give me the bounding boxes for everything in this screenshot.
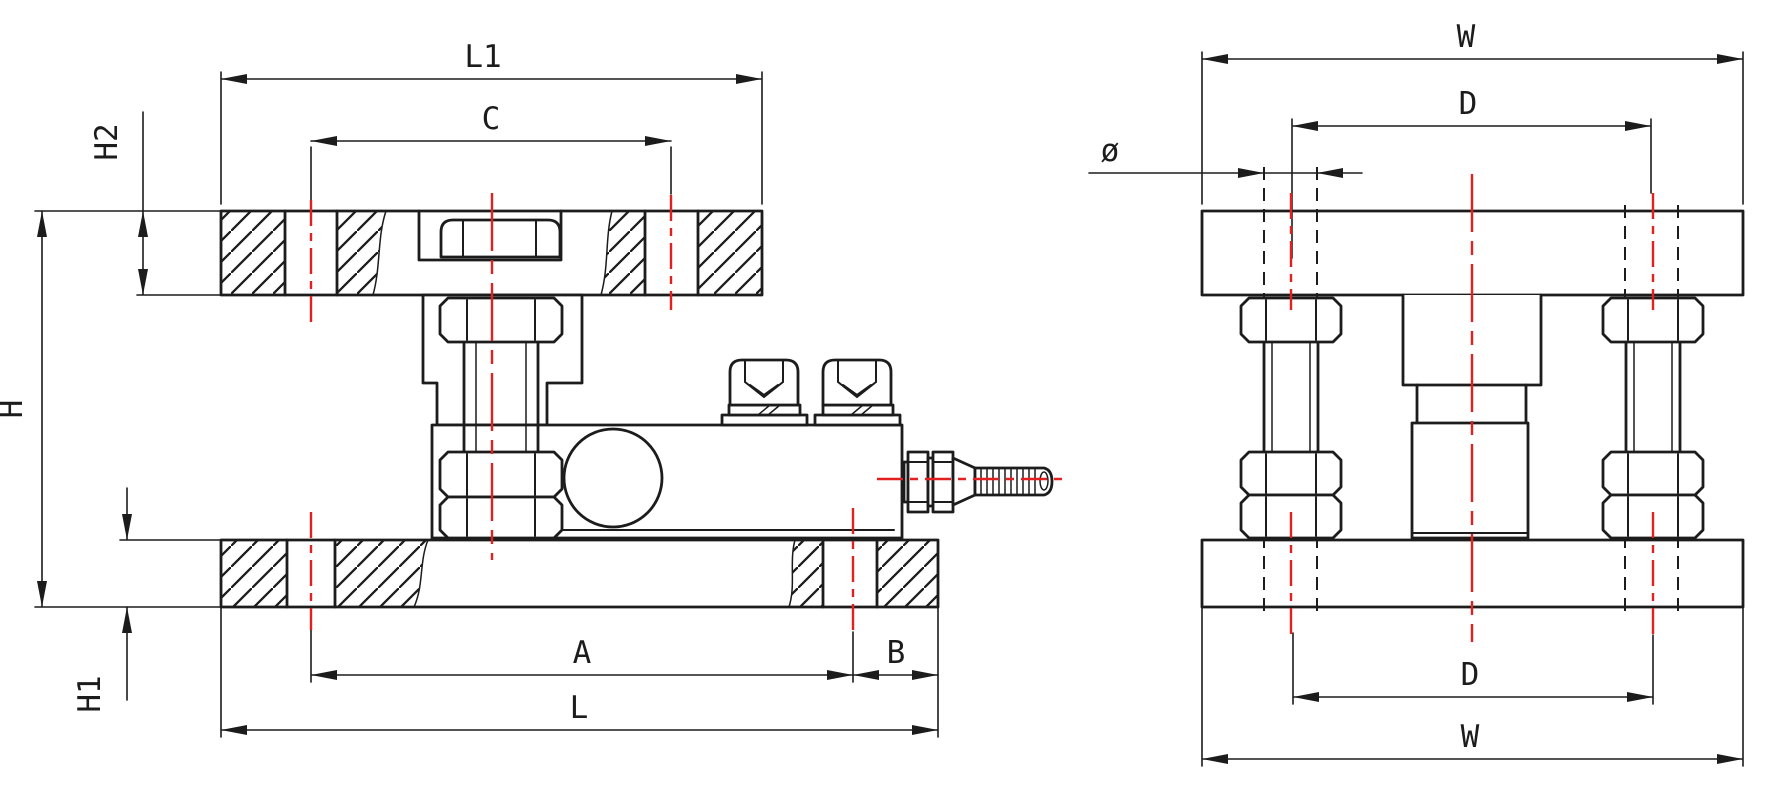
side-bottom-plate (221, 540, 938, 607)
dim-label-w-bottom: W (1461, 719, 1480, 755)
dim-label-d-top: D (1459, 86, 1478, 122)
dim-H2: H2 (35, 112, 221, 295)
dim-label-b: B (887, 635, 906, 671)
hex-nut-lock-1 (440, 452, 562, 497)
dim-D-bottom: D (1293, 633, 1653, 704)
dim-label-h1: H1 (72, 675, 108, 712)
load-cell-end (1412, 423, 1528, 538)
side-view: L1 C H2 H (0, 39, 1062, 737)
bottom-plate-outline (221, 540, 938, 607)
dim-H: H (0, 211, 221, 607)
weigh-module-technical-drawing: L1 C H2 H (0, 0, 1768, 794)
dim-label-diameter: ø (1101, 133, 1120, 169)
dim-label-h2: H2 (89, 123, 125, 160)
hatch-segment (877, 540, 938, 607)
front-view: W D ø D (1089, 19, 1743, 766)
hatch-segment (698, 211, 762, 295)
hex-bolt-head (441, 220, 560, 257)
cable-connector (904, 452, 1052, 512)
load-cell-bore (564, 429, 662, 527)
hatch-segment (335, 540, 428, 607)
dim-A: A (311, 630, 853, 682)
hex-nut-lock-1 (1603, 452, 1703, 495)
hatch-segment (221, 540, 287, 607)
screw-pad (815, 415, 900, 425)
dim-B: B (853, 635, 938, 680)
front-left-bolt-stack (1241, 298, 1341, 538)
screw-pad (722, 415, 807, 425)
dim-diameter: ø (1089, 133, 1362, 178)
front-right-bolt-stack (1603, 298, 1703, 538)
rod-thread-lines (1272, 342, 1310, 452)
hatch-segment (789, 540, 823, 607)
hex-nut-lock-2 (440, 497, 562, 538)
dim-label-l1: L1 (464, 39, 501, 75)
dim-label-a: A (573, 635, 592, 671)
hatch-segment (221, 211, 285, 295)
dim-label-w-top: W (1457, 19, 1476, 55)
dim-label-d-bottom: D (1461, 657, 1480, 693)
rod-thread-lines (1634, 342, 1672, 452)
hex-nut-lock-1 (1241, 452, 1341, 495)
hex-nut-upper (440, 298, 562, 342)
drawing-canvas: L1 C H2 H (0, 0, 1768, 794)
dim-label-c: C (482, 101, 501, 137)
connector-cone (953, 458, 975, 505)
dim-label-l: L (570, 690, 589, 726)
dim-label-h: H (0, 400, 30, 419)
dim-H1: H1 (72, 488, 221, 713)
dim-C: C (311, 101, 671, 200)
